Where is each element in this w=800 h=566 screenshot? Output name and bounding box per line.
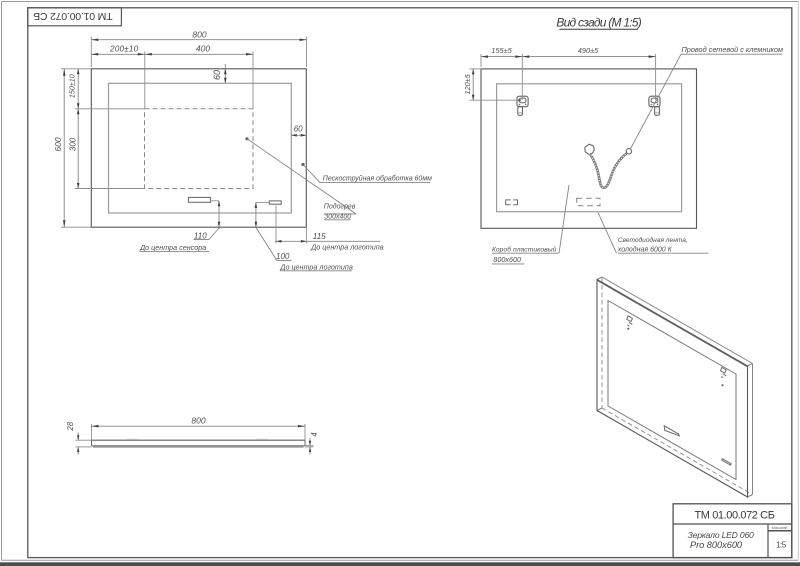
svg-text:100: 100: [276, 252, 290, 261]
svg-text:Масштаб: Масштаб: [772, 525, 789, 530]
svg-text:110: 110: [194, 231, 207, 240]
svg-text:Подогрев: Подогрев: [324, 203, 356, 211]
svg-text:120±5: 120±5: [463, 73, 472, 94]
svg-text:600: 600: [53, 137, 63, 151]
svg-text:Провод сетевой с клемником: Провод сетевой с клемником: [682, 45, 784, 54]
svg-text:Pro 800х600: Pro 800х600: [690, 540, 743, 550]
svg-text:300: 300: [69, 137, 78, 151]
svg-text:Короб пластиковый: Короб пластиковый: [492, 246, 557, 254]
svg-text:60: 60: [294, 124, 303, 133]
svg-text:ТМ 01.00.072 СБ: ТМ 01.00.072 СБ: [33, 10, 112, 22]
svg-text:800: 800: [192, 29, 206, 39]
svg-text:ТМ 01.00.072 СБ: ТМ 01.00.072 СБ: [694, 509, 774, 521]
svg-text:До центра логотипа: До центра логотипа: [279, 262, 352, 271]
svg-text:28: 28: [66, 421, 75, 431]
svg-text:холодная 6000 К: холодная 6000 К: [617, 246, 673, 254]
svg-text:1:5: 1:5: [776, 540, 787, 549]
svg-text:До центра сенсора: До центра сенсора: [139, 243, 206, 252]
svg-text:800х600: 800х600: [493, 255, 521, 264]
svg-text:150±10: 150±10: [67, 74, 76, 98]
svg-text:800: 800: [191, 415, 205, 425]
svg-text:Пескоструйная обработка 60мм: Пескоструйная обработка 60мм: [323, 174, 432, 182]
svg-text:До центра логотипа: До центра логотипа: [310, 242, 383, 251]
svg-text:490±5: 490±5: [578, 46, 599, 55]
svg-text:400: 400: [196, 43, 210, 53]
svg-text:155±5: 155±5: [491, 46, 512, 55]
svg-text:200±10: 200±10: [109, 44, 139, 53]
svg-text:4: 4: [310, 432, 319, 437]
svg-text:115: 115: [313, 232, 326, 241]
svg-text:60: 60: [212, 70, 222, 80]
svg-text:300х400: 300х400: [324, 213, 351, 220]
svg-text:Светодиодная лента,: Светодиодная лента,: [618, 236, 688, 244]
svg-text:Зеркало LED 060: Зеркало LED 060: [688, 530, 754, 540]
svg-text:Вид сзади (М 1:5): Вид сзади (М 1:5): [556, 16, 641, 30]
